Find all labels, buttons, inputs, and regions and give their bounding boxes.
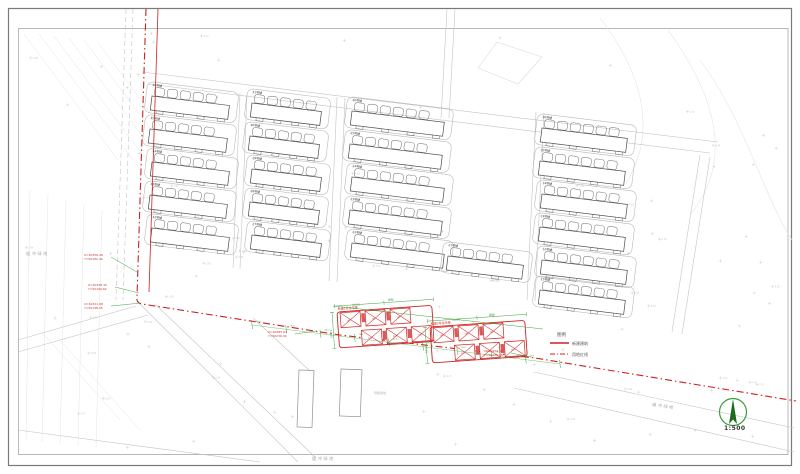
building-bay [380,237,391,247]
spot-elevation-mark [343,39,346,42]
spot-elevation-mark [686,110,689,113]
entrance-stub [195,149,202,153]
coord-label-y: Y=50236.90 [268,334,287,338]
building-bay [581,157,592,167]
building-bay [581,223,592,233]
building-bay [267,228,278,238]
entrance-stub [274,120,281,124]
spot-elevation-mark [53,316,56,319]
entrance-stub [615,151,622,155]
building-bay [476,250,487,260]
entrance-stub [546,209,553,213]
entrance-stub [569,145,576,149]
spot-elevation-value: 6.91 [105,397,110,400]
building-bay [609,259,620,269]
new-building-layer: 101101101101101101新建1号住宅楼101101101101101… [329,297,543,363]
building-bay [365,203,376,213]
entrance-stub [381,261,388,265]
building-bay [378,204,389,214]
structure-outline [297,370,314,427]
building-bay [254,94,265,104]
spot-elevation-mark [490,279,493,282]
structure-rect [339,369,362,417]
entrance-stub [432,267,439,271]
entrance-stub [307,157,314,161]
green-note: 绿地 [489,313,495,317]
building-bay [463,249,474,259]
spot-elevation-value: 4.77 [81,413,86,416]
entrance-stub [544,305,551,309]
entrance-stub [215,217,222,221]
entrance-stub [381,195,388,199]
building-bay [304,200,315,210]
structure-outline [339,369,362,417]
entrance-stub [567,244,574,248]
building-bay [306,101,317,111]
spot-elevation-value: 3.68 [169,295,174,298]
entrance-stub [256,250,263,254]
road-label: 缓冲绿地 [312,455,335,462]
entrance-stub [544,242,551,246]
building-bay [278,130,289,140]
building-bay [280,97,291,107]
building-bay [167,155,178,165]
spot-elevation-mark [753,291,756,294]
entrance-stub [176,113,183,117]
entrance-stub [156,243,163,247]
entrance-stub [356,258,363,262]
entrance-stub [197,182,204,186]
entrance-stub [615,217,622,221]
entrance-stub [569,211,576,215]
building-bay [167,89,178,99]
spot-elevation-value: 5.68 [775,286,780,289]
building-bay [280,163,291,173]
building-bay [365,137,376,147]
entrance-stub [567,307,574,311]
entrance-stub [307,223,314,227]
coord-label-y: Y=50182.44 [84,257,103,261]
building-bay [267,162,278,172]
spot-elevation-mark [77,412,80,415]
building-bay [178,123,189,133]
spot-elevation-value: 2.95 [627,388,632,391]
road-line [441,9,447,118]
entrance-stub [356,192,363,196]
spot-elevation-mark [658,238,661,241]
building-bay [596,192,607,202]
building-bay [167,221,178,231]
road-line [139,303,298,462]
spot-elevation-mark [405,267,408,270]
building-bay [391,140,402,150]
terrain-line [60,200,66,444]
building-bay [193,158,204,168]
building-bay [206,94,217,104]
road-line [240,94,247,269]
spot-elevation-value: 6.63 [235,237,240,240]
spot-elevation-mark [738,324,741,327]
spot-elevation-mark [498,36,501,39]
stair-hatch [382,331,386,340]
leader-line [115,287,139,293]
building-block: 32号楼 [144,213,239,255]
entrance-stub [254,151,261,155]
spot-elevation-mark [200,34,203,37]
spot-elevation-mark [436,349,439,352]
entrance-stub [154,144,161,148]
leader-line [111,303,141,306]
spot-elevation-value: 6.15 [634,292,639,295]
building-bay [542,218,553,228]
entrance-stub [274,186,281,190]
spot-elevation-mark [235,255,238,258]
building-body [350,243,444,268]
entrance-stub [254,217,261,221]
building-body [350,177,444,202]
entrance-stub [567,178,574,182]
legend-title: 图例 [557,331,566,338]
building-bay [204,193,215,203]
building-bay [570,254,581,264]
spot-elevation-value: 4.18 [662,238,667,241]
building-bay [352,135,363,145]
coord-label-y: Y=50190.62 [88,287,107,291]
spot-elevation-mark [719,376,722,379]
spot-elevation-mark [549,420,552,423]
road-label: 缓冲绿地 [652,401,676,411]
building-bay [568,284,579,294]
spot-elevation-value: 2.12 [204,35,209,38]
spot-elevation-value: 3.96 [238,256,243,259]
building-bay [154,219,165,229]
entrance-stub [156,111,163,115]
building-block: 26号楼 [344,96,454,140]
entrance-stub [430,168,437,172]
scale-label: 1:500 [724,425,746,432]
spot-elevation-mark [273,411,276,414]
stair-hatch [454,328,458,337]
dimension-value: 26.0 [256,321,261,323]
building-bay [293,99,304,109]
building-bay [180,222,191,232]
road-line [682,157,710,334]
spot-elevation-mark [202,262,205,265]
spot-elevation-mark [29,56,32,59]
building-bay [393,239,404,249]
green-note: 绿地 [388,298,394,302]
building-bay [406,175,417,185]
entrance-stub [407,264,414,268]
spot-elevation-mark [647,304,650,307]
building-bay [583,190,594,200]
building-body [250,103,321,125]
green-note: 14.00 [329,330,334,338]
spot-elevation-mark [291,415,294,418]
building-bay [581,286,592,296]
spot-elevation-value: 4.95 [715,144,720,147]
site-plan-canvas: 6.885.653.472.724.772.203.843.783.686.60… [0,0,800,474]
building-bay [193,92,204,102]
entrance-stub [309,124,316,128]
building-bay [391,206,402,216]
dimension-value: 28.6 [359,334,364,336]
building-bay [607,226,618,236]
building-bay [609,193,620,203]
spot-elevation-mark [712,144,715,147]
outer-frame [9,9,792,466]
entrance-stub [309,190,316,194]
building-bay [367,236,378,246]
building-body [248,136,319,158]
dimension-value: 24.0 [324,330,329,332]
building-bay [180,90,191,100]
spot-elevation-mark [438,305,441,308]
building-bay [607,289,618,299]
entrance-stub [309,256,316,260]
entrance-stub [590,181,597,185]
structure-rect [297,370,314,427]
building-bay [380,171,391,181]
spot-elevation-mark [631,291,634,294]
entrance-stub [215,151,222,155]
building-body [540,260,627,284]
building-bay [291,132,302,142]
building-bay [265,195,276,205]
spot-elevation-value: 6.14 [215,377,220,380]
terrain-line [24,34,118,160]
entrance-stub [256,184,263,188]
stair-hatch [407,329,411,338]
building-bay [502,254,513,264]
spot-elevation-mark [751,435,754,438]
spot-elevation-mark [170,184,173,187]
building-bay [568,155,579,165]
entrance-stub [174,212,181,216]
new-building-group: 101101101101101101新建2号住宅楼 [422,312,529,363]
contour-curve [600,18,643,185]
spot-elevation-mark [100,65,103,68]
spot-elevation-mark [637,391,640,394]
building-bay [206,160,217,170]
terrain-line [42,195,48,442]
building-bay [367,170,378,180]
spot-elevation-mark [649,433,652,436]
building-bay [352,201,363,211]
spot-elevation-value: 3.80 [579,185,584,188]
building-bay [165,122,176,132]
spot-elevation-value: 3.95 [147,321,152,324]
entrance-stub [217,118,224,122]
spot-elevation-mark [372,264,375,267]
spot-elevation-mark [109,252,112,255]
spot-elevation-mark [25,246,28,249]
north-arrow-needle [729,399,737,424]
spot-elevation-mark [219,362,222,365]
coord-label-y: Y=50198.35 [84,306,103,310]
building-layer: 36号楼35号楼34号楼33号楼32号楼31号楼30号楼29号楼28号楼27号楼… [142,81,637,427]
spot-elevation-mark [66,103,69,106]
spot-elevation-value: 2.20 [722,377,727,380]
spot-elevation-value: 4.15 [447,375,452,378]
contour-curve [668,30,715,215]
road-line [672,155,700,332]
spot-elevation-value: 5.65 [206,262,211,265]
entrance-stub [405,231,412,235]
terrain-line [69,38,163,164]
building-bay [404,142,415,152]
spot-elevation-mark [609,64,612,67]
entrance-stub [613,184,620,188]
building-bay [417,143,428,153]
entrance-stub [407,198,414,202]
terrain-layer: 6.885.653.472.724.772.203.843.783.686.60… [24,18,792,449]
entrance-stub [217,250,224,254]
building-bay [306,167,317,177]
building-bay [557,187,568,197]
building-body [248,202,319,224]
spot-elevation-mark [126,446,129,449]
spot-elevation-mark [243,400,246,403]
north-arrow [720,399,747,426]
spot-elevation-mark [165,295,168,298]
entrance-stub [292,254,299,258]
pond-outline [478,42,542,84]
entrance-stub [292,122,299,126]
spot-elevation-value: 6.88 [33,57,38,60]
entrance-stub [592,214,599,218]
building-bay [278,196,289,206]
building-bay [557,253,568,263]
building-bay [594,159,605,169]
spot-elevation-mark [150,32,153,35]
spot-elevation-mark [328,225,331,228]
spot-elevation-mark [624,387,627,390]
spot-elevation-value: 3.64 [29,247,34,250]
building-bay [544,185,555,195]
spot-elevation-value: 2.01 [759,383,764,386]
spot-elevation-mark [483,388,486,391]
entrance-stub [590,310,597,314]
entrance-stub [546,143,553,147]
spot-elevation-value: 4.81 [629,203,634,206]
new-building-group: 101101101101101101新建1号住宅楼 [329,297,436,348]
road-line [18,315,148,352]
building-bay [542,152,553,162]
road-line [449,9,455,118]
road-line [337,98,345,282]
entrance-stub [197,248,204,252]
building-bay [406,241,417,251]
entrance-stub [472,273,479,277]
building-block: 27号楼 [244,220,331,261]
spot-elevation-mark [771,285,774,288]
entrance-stub [356,126,363,130]
dimension-value: 26.8 [461,347,466,349]
entrance-stub [156,177,163,181]
entrance-stub [592,148,599,152]
building-bay [306,233,317,243]
entrance-stub [256,118,263,122]
entrance-stub [195,215,202,219]
building-bay [594,288,605,298]
spot-elevation-mark [454,443,457,446]
building-bay [542,281,553,291]
entrance-stub [407,132,414,136]
entrance-stub [544,176,551,180]
entrance-stub [432,201,439,205]
spot-elevation-mark [126,86,129,89]
road-label: 缓冲绿地 [26,250,49,257]
spot-elevation-mark [651,232,654,235]
spot-elevation-value: 6.60 [651,305,656,308]
building-bay [252,193,263,203]
building-bay [596,258,607,268]
terrain-line [54,36,148,162]
spot-elevation-mark [710,389,713,392]
road-line [329,97,337,281]
building-bay [265,129,276,139]
building-bay [594,225,605,235]
entrance-stub [613,250,620,254]
spot-elevation-mark [735,379,738,382]
spot-elevation-mark [576,184,579,187]
spot-elevation-mark [775,147,778,150]
building-bay [206,226,217,236]
spot-elevation-value: 2.72 [690,111,695,114]
building-bay [252,127,263,137]
spot-elevation-mark [147,345,150,348]
spot-elevation-mark [512,403,515,406]
entrance-stub [590,247,597,251]
building-body [250,235,321,257]
spot-elevation-mark [745,235,748,238]
spot-elevation-value: 3.36 [495,279,500,282]
spot-elevation-mark [748,381,751,384]
contour-curve [700,60,792,240]
spot-elevation-mark [533,363,536,366]
building-bay [304,134,315,144]
spot-elevation-value: 4.69 [355,173,360,176]
building-bay [354,234,365,244]
terrain-line [60,340,140,430]
stair-hatch [479,326,483,335]
spot-elevation-mark [650,199,653,202]
building-body [150,96,229,119]
entrance-stub [290,221,297,225]
stair-hatch [386,311,390,320]
legend: 图例 新建建筑 用地红线 [550,331,588,357]
building-bay [555,283,566,293]
dimension-value: 22.4 [393,338,398,340]
entrance-stub [154,210,161,214]
building-bay [555,220,566,230]
spot-elevation-mark [195,275,198,278]
building-bay [267,96,278,106]
entrance-stub [176,245,183,249]
spot-elevation-mark [759,261,762,264]
building-bay [165,188,176,198]
terrain-line [39,34,133,160]
building-block: 21号楼 [440,241,533,283]
green-note: 14.00 [424,345,429,353]
entrance-stub [290,155,297,159]
building-bay [404,208,415,218]
spot-elevation-value: 3.84 [91,352,96,355]
building-bay [154,153,165,163]
terrain-line [40,330,120,420]
building-bay [204,127,215,137]
